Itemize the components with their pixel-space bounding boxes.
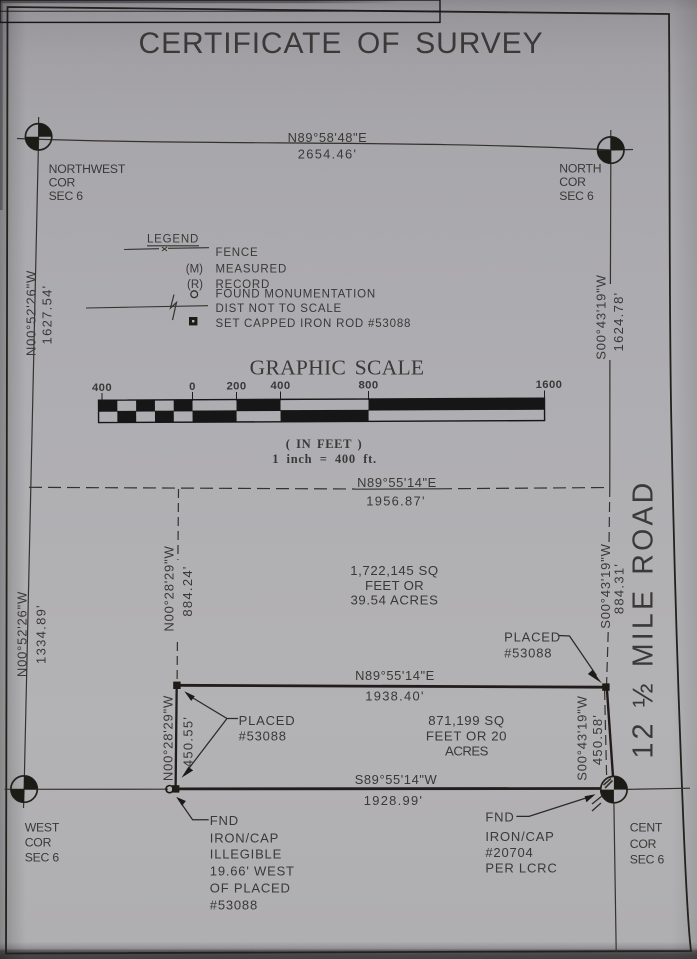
- svg-text:PLACED: PLACED: [239, 713, 296, 728]
- svg-text:S00°43'19"W: S00°43'19"W: [575, 695, 590, 780]
- svg-text:N00°52'26"W: N00°52'26"W: [24, 270, 39, 356]
- svg-text:39.54 ACRES: 39.54 ACRES: [351, 593, 439, 608]
- svg-text:IRON/CAP: IRON/CAP: [485, 829, 554, 844]
- svg-text:S89°55'14"W: S89°55'14"W: [355, 772, 438, 787]
- svg-text:#53088: #53088: [210, 898, 258, 913]
- svg-text:450.58': 450.58': [590, 714, 605, 765]
- svg-text:FND: FND: [485, 810, 514, 825]
- svg-text:FOUND MONUMENTATION: FOUND MONUMENTATION: [216, 289, 376, 301]
- svg-text:PLACED: PLACED: [504, 630, 561, 645]
- svg-text:SEC 6: SEC 6: [630, 853, 665, 867]
- svg-text:#53088: #53088: [504, 646, 552, 661]
- svg-text:OF PLACED: OF PLACED: [210, 881, 291, 896]
- svg-text:200: 200: [226, 381, 246, 393]
- svg-text:19.66' WEST: 19.66' WEST: [210, 864, 295, 879]
- svg-text:1938.40': 1938.40': [365, 689, 424, 704]
- svg-text:SEC 6: SEC 6: [559, 189, 594, 203]
- svg-text:N00°28'29"W: N00°28'29"W: [161, 695, 176, 781]
- svg-text:12 ½ MILE ROAD: 12 ½ MILE ROAD: [628, 480, 660, 759]
- svg-text:871,199 SQ: 871,199 SQ: [428, 713, 504, 728]
- svg-text:2654.46': 2654.46': [298, 147, 357, 162]
- svg-text:800: 800: [358, 380, 378, 392]
- svg-text:COR: COR: [559, 175, 586, 189]
- svg-text:(R): (R): [187, 279, 203, 291]
- svg-text:COR: COR: [49, 176, 76, 190]
- svg-text:COR: COR: [25, 836, 52, 850]
- svg-text:DIST NOT TO SCALE: DIST NOT TO SCALE: [216, 303, 343, 315]
- svg-text:N00°28'29"W: N00°28'29"W: [162, 545, 177, 631]
- svg-text:PER LCRC: PER LCRC: [485, 861, 557, 876]
- svg-text:1956.87': 1956.87': [366, 494, 425, 509]
- svg-text:NORTH: NORTH: [559, 162, 601, 176]
- svg-text:FEET OR: FEET OR: [365, 578, 424, 593]
- svg-text:1624.78': 1624.78': [611, 292, 626, 352]
- svg-text:FND: FND: [210, 813, 239, 828]
- svg-text:1627.54': 1627.54': [40, 285, 55, 345]
- svg-text:0: 0: [189, 381, 196, 393]
- svg-text:884.31': 884.31': [612, 563, 627, 614]
- svg-text:MEASURED: MEASURED: [216, 264, 288, 276]
- svg-text:SET CAPPED IRON ROD #53088: SET CAPPED IRON ROD #53088: [216, 318, 412, 330]
- svg-text:FENCE: FENCE: [216, 247, 259, 259]
- svg-text:LEGEND: LEGEND: [147, 234, 199, 246]
- svg-text:WEST: WEST: [25, 821, 60, 835]
- svg-text:#20704: #20704: [485, 845, 533, 860]
- svg-text:COR: COR: [630, 837, 657, 851]
- svg-text:884.24': 884.24': [180, 565, 195, 616]
- svg-text:1,722,145 SQ: 1,722,145 SQ: [350, 563, 439, 578]
- svg-text:(M): (M): [186, 264, 203, 276]
- svg-text:GRAPHIC SCALE: GRAPHIC SCALE: [250, 356, 425, 380]
- svg-text:1600: 1600: [536, 379, 563, 391]
- svg-text:N89°55'14"E: N89°55'14"E: [355, 668, 435, 683]
- svg-text:S00°43'19"W: S00°43'19"W: [594, 274, 609, 359]
- svg-text:1928.99': 1928.99': [364, 793, 423, 808]
- svg-text:400: 400: [92, 382, 112, 394]
- svg-text:1334.89': 1334.89': [34, 604, 49, 664]
- svg-text:CENT: CENT: [630, 821, 663, 835]
- svg-text:ACRES: ACRES: [445, 744, 489, 759]
- svg-text:N00°52'26"W: N00°52'26"W: [15, 591, 30, 677]
- svg-text:#53088: #53088: [239, 729, 287, 744]
- svg-text:IRON/CAP: IRON/CAP: [210, 831, 279, 846]
- svg-text:N89°55'14"E: N89°55'14"E: [357, 475, 437, 490]
- svg-text:400: 400: [270, 380, 290, 392]
- svg-text:N89°58'48"E: N89°58'48"E: [288, 130, 368, 145]
- svg-text:1 inch = 400 ft.: 1 inch = 400 ft.: [272, 452, 377, 466]
- svg-text:450.55': 450.55': [181, 716, 196, 767]
- svg-text:FEET OR 20: FEET OR 20: [426, 729, 507, 744]
- svg-text:SEC 6: SEC 6: [49, 189, 84, 203]
- svg-text:NORTHWEST: NORTHWEST: [49, 162, 126, 176]
- svg-text:CERTIFICATE OF SURVEY: CERTIFICATE OF SURVEY: [139, 27, 544, 60]
- svg-text:SEC 6: SEC 6: [25, 851, 60, 865]
- svg-text:ILLEGIBLE: ILLEGIBLE: [210, 847, 282, 862]
- svg-text:( IN FEET ): ( IN FEET ): [286, 437, 363, 451]
